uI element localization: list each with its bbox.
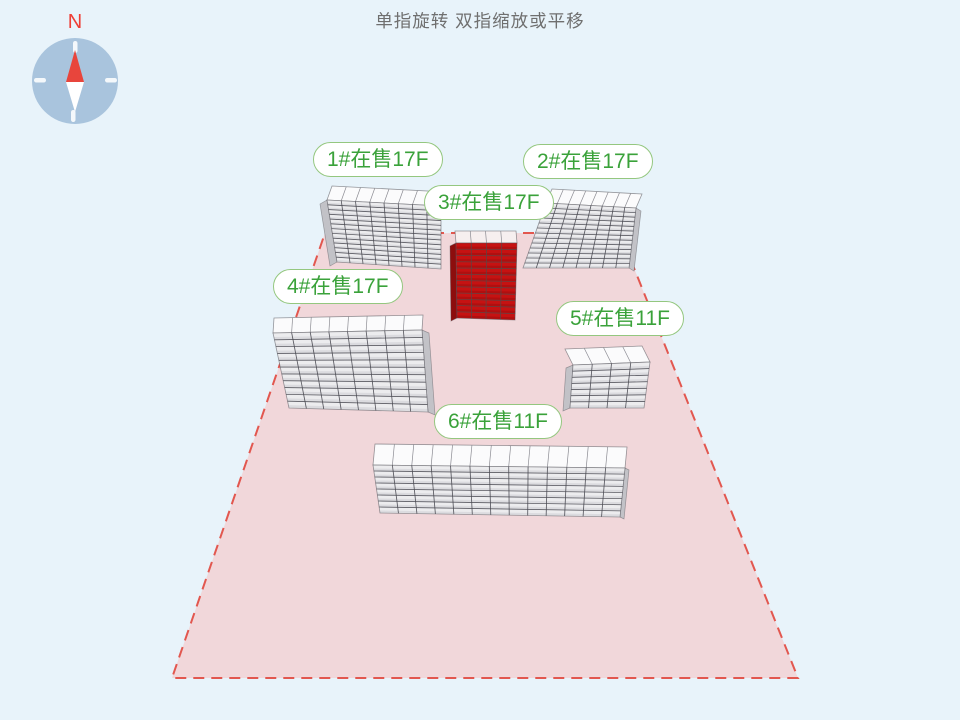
compass-tick-west	[34, 78, 46, 83]
building-label-3[interactable]: 3#在售17F	[424, 185, 554, 220]
building-4[interactable]	[273, 315, 435, 415]
compass[interactable]: N	[0, 0, 150, 140]
building-3[interactable]	[450, 231, 517, 321]
map-view[interactable]: 单指旋转 双指缩放或平移 N 1#在售17F 2#在售17F 3#在售17F 4…	[0, 0, 960, 720]
building-5[interactable]	[563, 346, 650, 411]
compass-tick-south	[71, 110, 76, 122]
building-6[interactable]	[373, 444, 629, 519]
building-label-1[interactable]: 1#在售17F	[313, 142, 443, 177]
building-label-2[interactable]: 2#在售17F	[523, 144, 653, 179]
building-label-5[interactable]: 5#在售11F	[556, 301, 684, 336]
compass-tick-east	[105, 78, 117, 83]
building-6-roof	[373, 444, 627, 468]
building-label-4[interactable]: 4#在售17F	[273, 269, 403, 304]
compass-north-label: N	[68, 11, 82, 33]
building-label-6[interactable]: 6#在售11F	[434, 404, 562, 439]
